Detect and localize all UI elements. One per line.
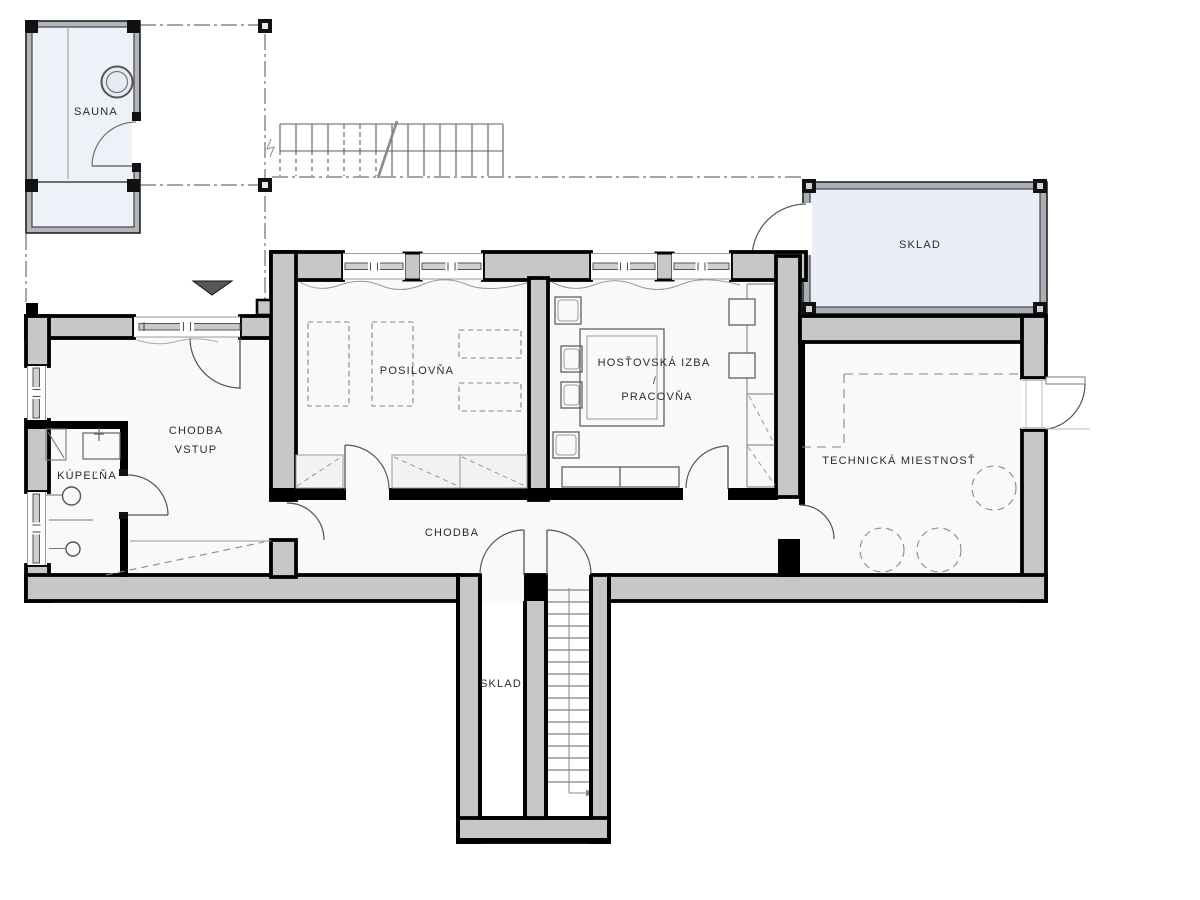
svg-text:CHODBA: CHODBA xyxy=(425,527,479,539)
svg-text:TECHNICKÁ MIESTNOSŤ: TECHNICKÁ MIESTNOSŤ xyxy=(822,454,976,467)
svg-text:POSILOVŇA: POSILOVŇA xyxy=(380,364,454,377)
svg-text:SKLAD: SKLAD xyxy=(480,678,522,690)
svg-text:CHODBA: CHODBA xyxy=(169,425,223,437)
svg-text:SAUNA: SAUNA xyxy=(74,106,118,118)
svg-text:KÚPEĽŇA: KÚPEĽŇA xyxy=(57,469,117,482)
svg-text:PRACOVŇA: PRACOVŇA xyxy=(621,390,692,403)
svg-text:/: / xyxy=(653,376,657,387)
svg-text:HOSŤOVSKÁ IZBA: HOSŤOVSKÁ IZBA xyxy=(598,356,711,369)
svg-text:SKLAD: SKLAD xyxy=(899,239,941,251)
svg-text:VSTUP: VSTUP xyxy=(175,444,218,456)
